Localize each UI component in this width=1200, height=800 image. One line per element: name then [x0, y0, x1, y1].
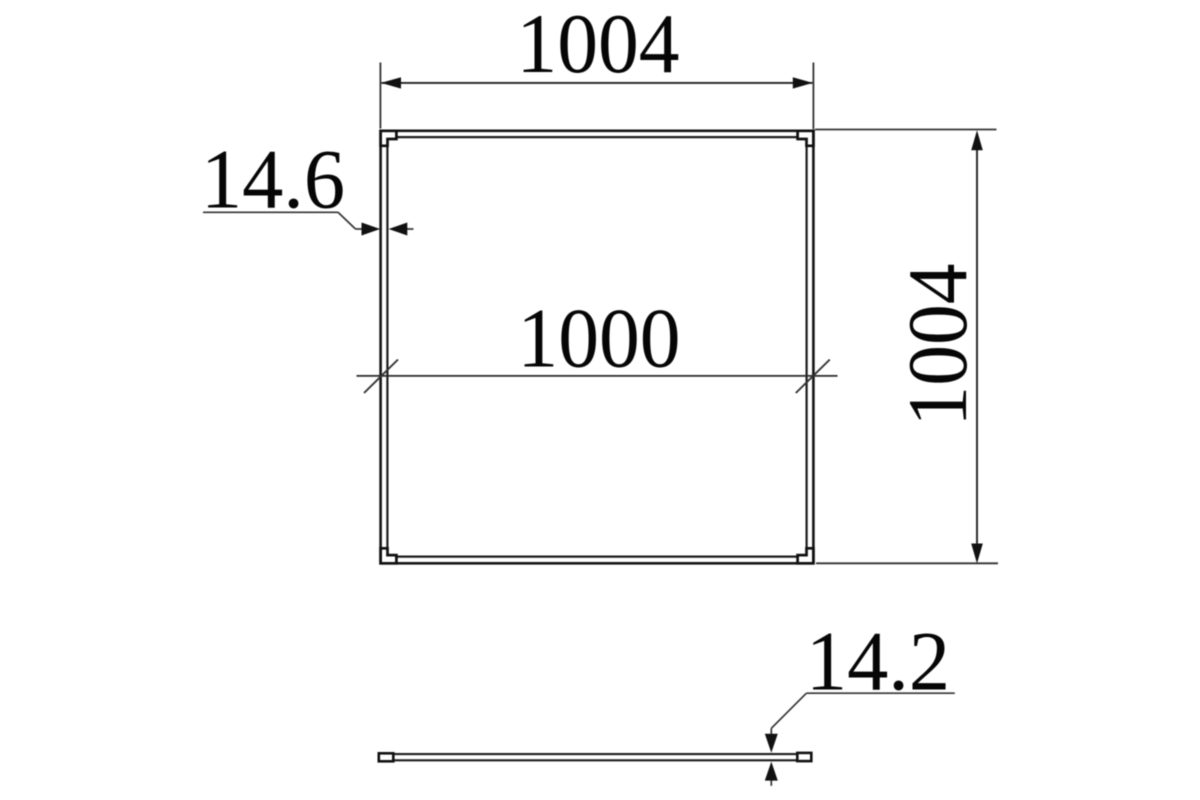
svg-text:1004: 1004 — [892, 263, 986, 426]
svg-text:14.2: 14.2 — [806, 614, 950, 708]
svg-text:1004: 1004 — [516, 0, 679, 91]
svg-text:1000: 1000 — [517, 292, 680, 386]
svg-text:14.6: 14.6 — [201, 132, 345, 226]
